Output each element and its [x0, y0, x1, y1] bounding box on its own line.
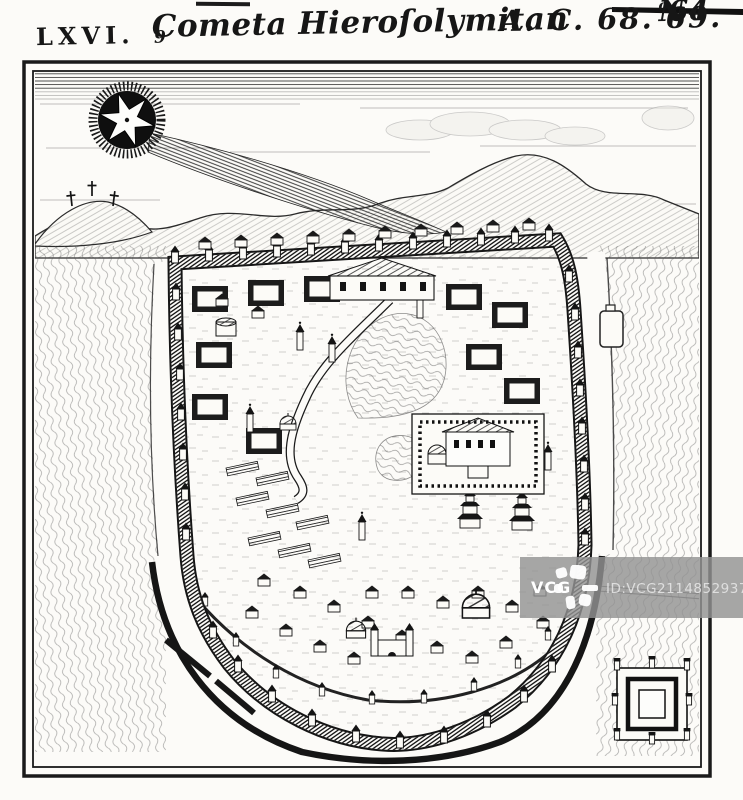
- plate-no-num: 64: [668, 0, 709, 28]
- title-name: Cometa Hieroſolymitan9: [151, 9, 166, 48]
- temple-complex: [412, 414, 544, 494]
- round-keep: [216, 318, 236, 336]
- engraving-page: LXVI. Cometa Hieroſolymitan9 A. C. 68. 6…: [0, 0, 743, 800]
- watermark-id: ID:VCG211485293722: [606, 581, 743, 597]
- square-fort-icon: [612, 656, 693, 744]
- east-pool: [600, 305, 623, 347]
- title-numeral: LXVI.: [36, 20, 135, 51]
- vcg-pinwheel-icon: [553, 565, 599, 611]
- watermark-bar: VCG ID:VCG211485293722: [520, 557, 743, 618]
- west-valley: [35, 246, 167, 752]
- engraved-map-image: [0, 0, 743, 800]
- title-plate-number: No64: [658, 0, 668, 28]
